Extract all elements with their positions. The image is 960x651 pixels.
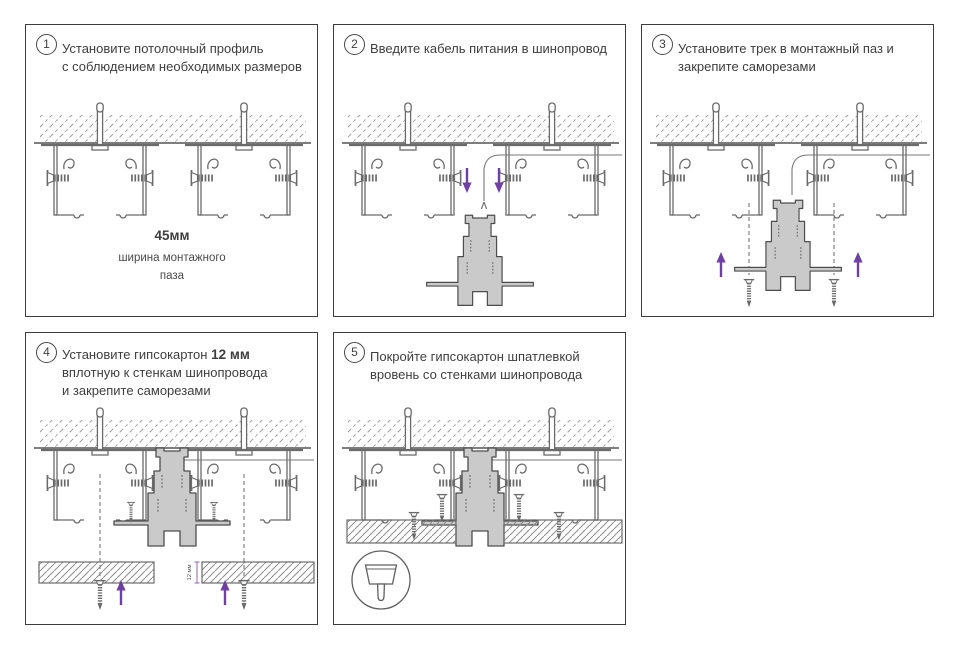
step-panel-3: 3 Установите трек в монтажный паз и закр… bbox=[641, 24, 934, 317]
step-panel-1: 1 Установите потолочный профиль с соблюд… bbox=[25, 24, 318, 317]
step-2-diagram bbox=[334, 91, 627, 314]
step-instruction: Установите гипсокартон 12 мм вплотную к … bbox=[62, 346, 308, 400]
up-arrow-icon bbox=[716, 252, 725, 277]
screw-icon bbox=[238, 581, 249, 610]
instruction-line: с соблюдением необходимых размеров bbox=[62, 59, 302, 74]
mounting-profile-right bbox=[493, 145, 611, 218]
step-number: 1 bbox=[43, 37, 50, 51]
instruction-line: Установите гипсокартон bbox=[62, 347, 211, 362]
track-profile bbox=[114, 448, 230, 546]
screw-icon bbox=[829, 280, 840, 308]
mounting-profile-left bbox=[349, 145, 467, 218]
ceiling-hatch bbox=[40, 420, 306, 447]
step-number-badge: 2 bbox=[344, 34, 365, 55]
up-arrow-icon bbox=[220, 580, 229, 605]
up-arrow-icon bbox=[853, 252, 862, 277]
step-panel-4: 4 Установите гипсокартон 12 мм вплотную … bbox=[25, 332, 318, 625]
step-number-badge: 5 bbox=[344, 342, 365, 363]
step-panel-5: 5 Покройте гипсокартон шпатлевкой вровен… bbox=[333, 332, 626, 625]
ceiling-hatch bbox=[656, 115, 922, 142]
step-3-diagram bbox=[642, 91, 935, 314]
cable-end bbox=[481, 202, 486, 209]
track-profile bbox=[735, 200, 842, 290]
power-cable bbox=[788, 155, 930, 241]
instruction-line: Покройте гипсокартон шпатлевкой bbox=[370, 349, 580, 364]
mounting-profile-right bbox=[801, 145, 919, 218]
step-number-badge: 1 bbox=[36, 34, 57, 55]
step-1-diagram: 45мм ширина монтажного паза bbox=[26, 91, 319, 314]
step-4-diagram: 12 мм bbox=[26, 396, 319, 622]
slot-width-caption: паза bbox=[160, 270, 185, 282]
step-instruction: Установите трек в монтажный паз и закреп… bbox=[678, 40, 924, 76]
mounting-profile-left bbox=[41, 145, 159, 218]
mounting-profile-left bbox=[657, 145, 775, 218]
putty-knife-icon bbox=[352, 551, 410, 609]
mounting-profile-right bbox=[493, 450, 611, 523]
step-number-badge: 4 bbox=[36, 342, 57, 363]
mounting-profile-left bbox=[349, 450, 467, 523]
step-instruction: Покройте гипсокартон шпатлевкой вровень … bbox=[370, 348, 616, 384]
instruction-sheet: 1 Установите потолочный профиль с соблюд… bbox=[0, 0, 960, 651]
gypsum-board-right bbox=[504, 520, 622, 543]
gypsum-board-right bbox=[202, 562, 314, 583]
slot-width-dimension: 45мм bbox=[155, 228, 190, 243]
gypsum-board-left bbox=[347, 520, 456, 543]
screw-icon bbox=[94, 581, 105, 610]
board-thickness-label: 12 мм bbox=[187, 564, 193, 580]
ceiling-hatch bbox=[348, 115, 614, 142]
ceiling-hatch bbox=[40, 115, 306, 142]
instruction-line: Установите потолочный профиль bbox=[62, 41, 264, 56]
track-profile bbox=[427, 215, 534, 305]
step-panel-2: 2 Введите кабель питания в шинопровод bbox=[333, 24, 626, 317]
step-number: 3 bbox=[659, 37, 666, 51]
slot-width-caption: ширина монтажного bbox=[118, 252, 225, 264]
step-number: 4 bbox=[43, 345, 50, 359]
instruction-line: Установите трек в монтажный паз и bbox=[678, 41, 894, 56]
step-instruction: Установите потолочный профиль с соблюден… bbox=[62, 40, 308, 76]
up-arrow-icon bbox=[116, 580, 125, 605]
screw-icon bbox=[744, 280, 755, 308]
down-arrow-icon bbox=[462, 168, 471, 193]
board-thickness-bracket bbox=[195, 562, 200, 583]
screw-icon bbox=[437, 495, 448, 523]
instruction-line: Введите кабель питания в шинопровод bbox=[370, 41, 607, 56]
mounting-profile-right bbox=[185, 145, 303, 218]
instruction-line: вплотную к стенкам шинопровода bbox=[62, 365, 268, 380]
step-number: 5 bbox=[351, 345, 358, 359]
step-instruction: Введите кабель питания в шинопровод bbox=[370, 40, 616, 58]
ceiling-hatch bbox=[348, 420, 614, 447]
instruction-line: вровень со стенками шинопровода bbox=[370, 367, 582, 382]
gypsum-board-left bbox=[39, 562, 154, 583]
step-5-diagram bbox=[334, 396, 627, 622]
board-thickness-bold: 12 мм bbox=[211, 347, 250, 362]
screw-icon bbox=[514, 495, 525, 523]
step-number-badge: 3 bbox=[652, 34, 673, 55]
step-number: 2 bbox=[351, 37, 358, 51]
instruction-line: закрепите саморезами bbox=[678, 59, 816, 74]
